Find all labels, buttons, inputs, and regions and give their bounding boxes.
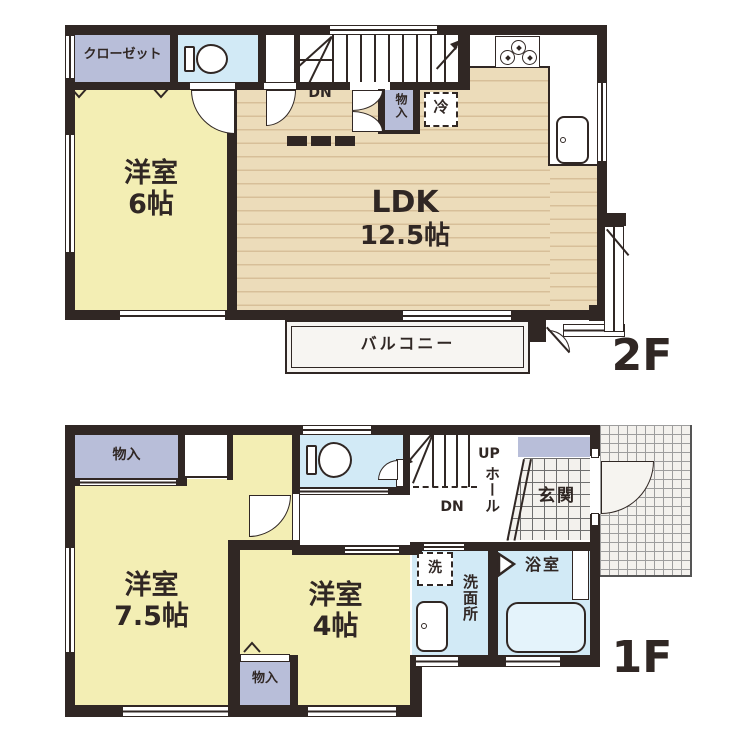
stair-treads-icon [432, 430, 478, 487]
room4-size: 4帖 [278, 611, 393, 642]
hall-label: ホール [483, 466, 503, 546]
washroom-label: 洗面所 [457, 574, 481, 662]
room75-label: 洋室 7.5帖 [90, 570, 213, 633]
faucet-dot [421, 623, 427, 629]
storage-top-label: 物入 [75, 447, 178, 463]
door-jamb [591, 448, 599, 458]
room75-size: 7.5帖 [90, 601, 213, 632]
floor-1f-group: 物入 洋室 7.5帖 洋室 4帖 物入 UP ホール DN 玄関 洗 洗面所 浴… [0, 0, 750, 750]
sliding-door [345, 547, 399, 553]
washer-label: 洗 [417, 560, 453, 576]
bath-label: 浴室 [510, 556, 576, 575]
room4-name: 洋室 [278, 580, 393, 611]
storage-open-mark [243, 641, 261, 653]
window [303, 426, 371, 434]
door-opening [590, 456, 600, 514]
sliding-door [80, 480, 176, 485]
wall [403, 425, 410, 487]
window [506, 657, 560, 666]
door-opening [293, 494, 299, 540]
wall [290, 655, 298, 705]
room4-label: 洋室 4帖 [278, 580, 393, 643]
wall [178, 430, 185, 480]
up-label: UP [474, 446, 504, 462]
storage-bottom-label: 物入 [240, 671, 290, 686]
stair-landing-dash [413, 486, 477, 488]
toilet-icon [306, 445, 317, 475]
entrance-label: 玄関 [526, 487, 588, 507]
sliding-door [300, 489, 388, 494]
floor-label-1f: 1F [604, 632, 680, 683]
window [66, 548, 74, 652]
window [308, 707, 396, 716]
sliding-door [424, 544, 464, 550]
wall [228, 548, 240, 717]
shoe-cabinet [518, 437, 592, 457]
dn-label-1f: DN [434, 499, 470, 515]
window [416, 657, 458, 666]
bathtub-icon [506, 602, 586, 653]
alcove [185, 435, 227, 479]
room75-name: 洋室 [90, 570, 213, 601]
floor-plan-canvas: クローゼット 洋室 6帖 LDK 12.5帖 DN 物入 冷 バルコニー 2F [0, 0, 750, 750]
alcove-edge [185, 476, 229, 478]
storage-shelf [240, 654, 290, 662]
door-jamb [591, 513, 599, 526]
wall [227, 432, 233, 480]
window [123, 707, 228, 716]
